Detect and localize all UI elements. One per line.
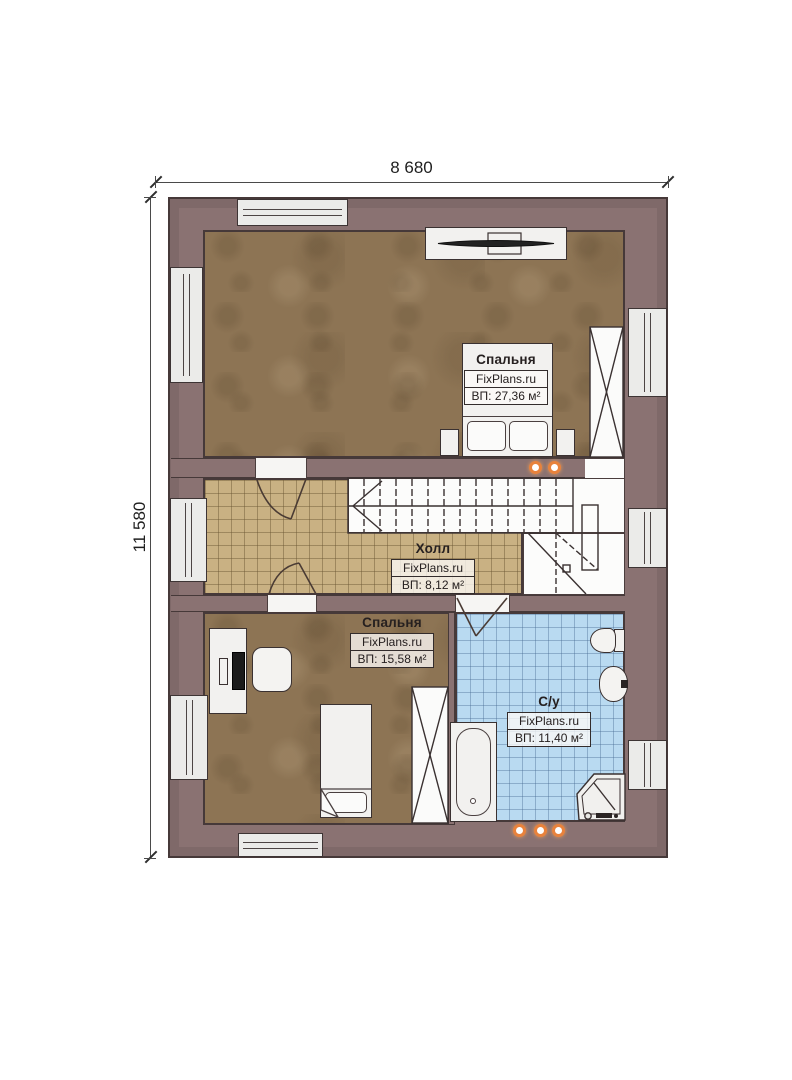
dimension-extension bbox=[144, 858, 156, 859]
room-title: Спальня bbox=[461, 352, 551, 367]
window-left-bedroom-bottom bbox=[170, 695, 208, 780]
sink-faucet bbox=[621, 680, 628, 688]
computer-monitor bbox=[232, 652, 245, 690]
spotlight bbox=[548, 461, 561, 474]
brand-watermark: FixPlans.ru bbox=[465, 371, 547, 387]
dimension-height-label: 11 580 bbox=[130, 487, 150, 567]
spotlight bbox=[534, 824, 547, 837]
room-info-box: FixPlans.ru ВП: 11,40 м² bbox=[507, 712, 591, 747]
tv-console bbox=[425, 227, 567, 260]
room-area: ВП: 11,40 м² bbox=[508, 729, 590, 746]
window-glass bbox=[243, 842, 318, 849]
room-title: Спальня bbox=[347, 615, 437, 630]
nightstand bbox=[440, 429, 459, 456]
door-opening-bedroom-top bbox=[255, 458, 307, 478]
bedroom-top-floor bbox=[203, 230, 625, 458]
dimension-extension bbox=[144, 197, 156, 198]
room-info-box: FixPlans.ru ВП: 8,12 м² bbox=[391, 559, 475, 594]
spotlight bbox=[552, 824, 565, 837]
room-label-bedroom-bottom: Спальня FixPlans.ru ВП: 15,58 м² bbox=[347, 615, 437, 668]
room-info-box: FixPlans.ru ВП: 27,36 м² bbox=[464, 370, 548, 405]
door-opening-bedroom-bottom bbox=[267, 595, 317, 612]
dimension-tick bbox=[145, 851, 158, 864]
keyboard bbox=[219, 658, 228, 685]
bed-blanket-line bbox=[463, 416, 552, 417]
door-opening-bathroom bbox=[455, 595, 510, 612]
spotlight bbox=[529, 461, 542, 474]
dimension-extension bbox=[155, 176, 156, 188]
pillow bbox=[325, 792, 367, 813]
stair-landing bbox=[523, 533, 625, 595]
window-glass bbox=[243, 209, 341, 216]
office-chair bbox=[252, 647, 292, 692]
room-label-bathroom: С/у FixPlans.ru ВП: 11,40 м² bbox=[504, 694, 594, 747]
room-area: ВП: 8,12 м² bbox=[392, 576, 474, 593]
dimension-width-line bbox=[155, 182, 668, 183]
wall-hall-bottom bbox=[171, 595, 625, 612]
dimension-extension bbox=[668, 176, 669, 188]
window-glass bbox=[644, 743, 651, 786]
window-glass bbox=[644, 313, 651, 391]
spotlight bbox=[513, 824, 526, 837]
window-bottom bbox=[238, 833, 323, 857]
brand-watermark: FixPlans.ru bbox=[351, 634, 433, 650]
window-glass bbox=[186, 700, 193, 775]
window-glass bbox=[185, 503, 192, 577]
room-title: С/у bbox=[504, 694, 594, 709]
room-info-box: FixPlans.ru ВП: 15,58 м² bbox=[350, 633, 434, 668]
dimension-width-label: 8 680 bbox=[155, 158, 668, 178]
room-title: Холл bbox=[388, 541, 478, 556]
toilet-icon bbox=[590, 628, 616, 653]
dimension-height-line bbox=[150, 197, 151, 858]
room-label-hall: Холл FixPlans.ru ВП: 8,12 м² bbox=[388, 541, 478, 594]
window-glass bbox=[644, 512, 651, 564]
room-area: ВП: 27,36 м² bbox=[465, 387, 547, 404]
brand-watermark: FixPlans.ru bbox=[392, 560, 474, 576]
floor-plan-canvas: 8 680 11 580 bbox=[0, 0, 792, 1080]
brand-watermark: FixPlans.ru bbox=[508, 713, 590, 729]
room-area: ВП: 15,58 м² bbox=[351, 650, 433, 667]
bathtub-drain bbox=[470, 798, 476, 804]
window-right-bedroom-top bbox=[628, 308, 667, 397]
room-label-bedroom-top: Спальня FixPlans.ru ВП: 27,36 м² bbox=[461, 352, 551, 405]
window-left-hall bbox=[170, 498, 207, 582]
pillow bbox=[467, 421, 506, 451]
window-right-stairwell bbox=[628, 508, 667, 568]
wall-bedroom-hall bbox=[171, 458, 585, 478]
pillow bbox=[509, 421, 548, 451]
window-left-bedroom-top bbox=[170, 267, 203, 383]
window-top bbox=[237, 199, 348, 226]
window-right-bathroom bbox=[628, 740, 667, 790]
window-glass bbox=[183, 274, 190, 377]
nightstand bbox=[556, 429, 575, 456]
staircase-area bbox=[348, 478, 625, 533]
